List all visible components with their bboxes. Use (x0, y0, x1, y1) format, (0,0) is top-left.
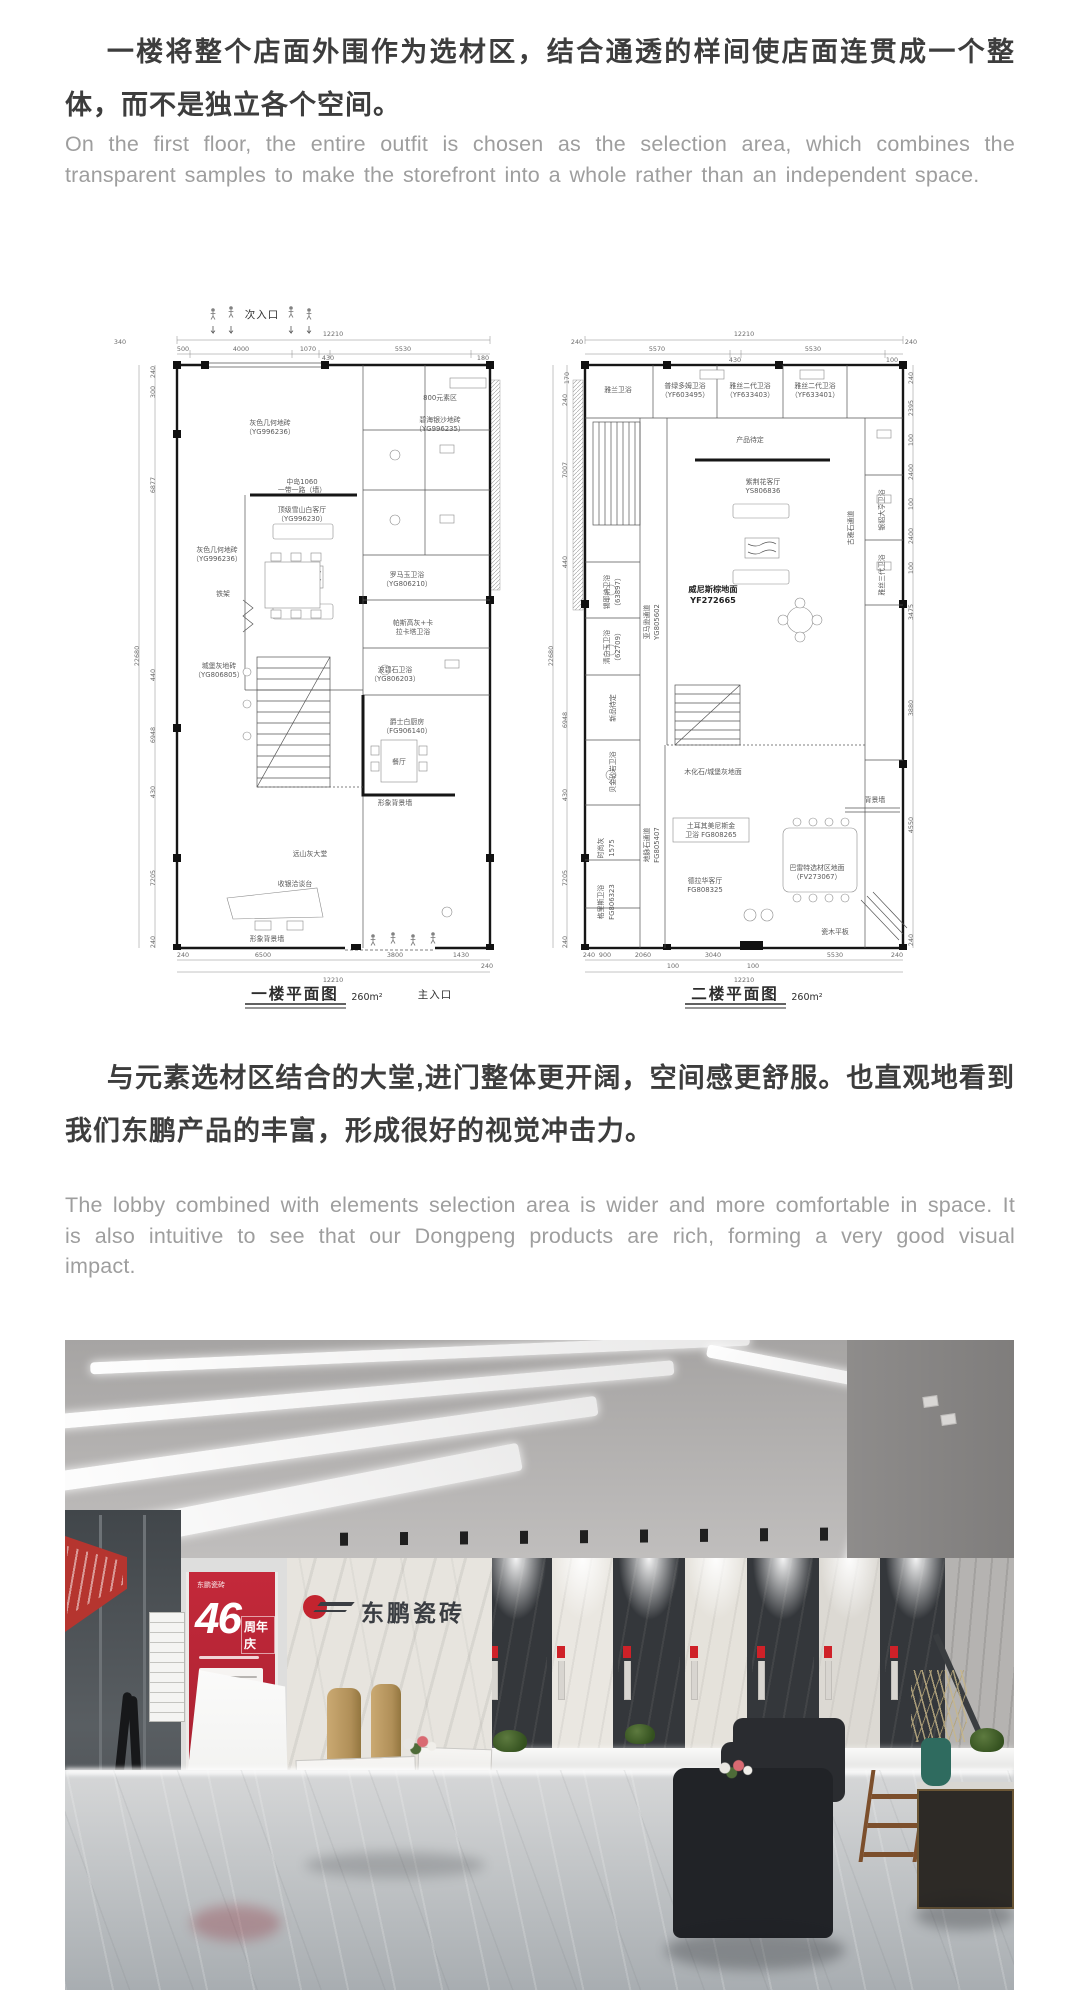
recessed-downlight (922, 1395, 938, 1408)
svg-text:雅丝二代卫浴: 雅丝二代卫浴 (729, 381, 770, 390)
svg-text:2400: 2400 (907, 464, 915, 480)
svg-text:3040: 3040 (705, 951, 721, 959)
svg-text:收银洽谈台: 收银洽谈台 (278, 879, 313, 888)
svg-text:雅丝二代卫浴: 雅丝二代卫浴 (794, 381, 835, 390)
wood-console (917, 1782, 1014, 1909)
svg-text:FG808325: FG808325 (687, 886, 723, 894)
logo-text: 东鹏瓷砖 (361, 1594, 465, 1628)
logo-red-circle-icon (303, 1595, 327, 1619)
svg-text:6877: 6877 (149, 477, 157, 493)
svg-text:7205: 7205 (149, 870, 157, 886)
potted-plant (625, 1724, 655, 1744)
middle-paragraph-en: The lobby combined with elements selecti… (65, 1190, 1015, 1282)
plan1-dimensions-left: 240 300 6877 440 6948 430 7205 240 22680 (133, 365, 157, 948)
svg-text:雅丝三代卫浴: 雅丝三代卫浴 (877, 554, 886, 595)
svg-text:锡耶纳卫浴: 锡耶纳卫浴 (602, 575, 611, 610)
svg-text:12210: 12210 (734, 330, 754, 338)
svg-text:YG805602: YG805602 (653, 604, 661, 641)
svg-text:（YF633401）: （YF633401） (791, 391, 839, 399)
svg-text:紫荆花客厅: 紫荆花客厅 (746, 477, 781, 486)
potted-plant (970, 1728, 1004, 1752)
svg-text:一带一路（墙）: 一带一路（墙） (278, 485, 326, 494)
svg-text:260m²: 260m² (351, 992, 382, 1003)
dried-branches (911, 1670, 967, 1742)
svg-text:2060: 2060 (635, 951, 651, 959)
price-tag (824, 1646, 832, 1658)
svg-text:340: 340 (114, 338, 126, 346)
svg-text:240: 240 (891, 951, 903, 959)
svg-text:22680: 22680 (133, 646, 141, 666)
svg-text:爵士白厨房: 爵士白厨房 (390, 717, 425, 726)
main-entrance-people (371, 907, 452, 946)
svg-text:城堡灰地砖: 城堡灰地砖 (202, 661, 237, 670)
svg-text:240: 240 (561, 936, 569, 948)
banner-reflection (191, 1905, 281, 1941)
floor-plan-second-floor: 12210 240 5570 430 5530 100 240 170 240 … (545, 300, 925, 1010)
svg-text:7205: 7205 (561, 870, 569, 886)
recessed-downlight (940, 1413, 956, 1426)
svg-text:240: 240 (583, 951, 595, 959)
svg-text:FG806323: FG806323 (608, 884, 616, 920)
svg-text:亚马逊通道: 亚马逊通道 (642, 605, 651, 640)
svg-text:240: 240 (149, 936, 157, 948)
svg-text:300: 300 (149, 386, 157, 398)
svg-text:瓷木平板: 瓷木平板 (821, 927, 849, 936)
entry-label-bottom: 主入口 (418, 989, 453, 1001)
svg-text:YF272665: YF272665 (689, 595, 736, 605)
svg-text:顶级雪山白客厅: 顶级雪山白客厅 (278, 505, 326, 514)
svg-text:4000: 4000 (233, 345, 249, 353)
dongpeng-logo: 东鹏瓷砖 (303, 1592, 493, 1626)
svg-text:6500: 6500 (255, 951, 271, 959)
price-tag (757, 1646, 765, 1658)
svg-text:100: 100 (907, 562, 915, 574)
potted-plant (493, 1730, 527, 1752)
console-reflection (915, 1900, 1014, 1930)
svg-text:430: 430 (561, 789, 569, 801)
svg-text:（YF603495）: （YF603495） (661, 391, 709, 399)
svg-text:900: 900 (599, 951, 611, 959)
svg-text:格里斯卫浴: 格里斯卫浴 (596, 885, 605, 920)
tile-display-panel (485, 1558, 547, 1754)
svg-text:12210: 12210 (323, 976, 343, 984)
showroom-photo: 东鹏瓷砖 东鹏瓷砖 46 周年庆 01 02 04 (65, 1340, 1014, 1990)
floor-plan-first-floor: 次入口 12210 340 500 4000 1070 430 5530 180… (95, 300, 505, 1010)
svg-text:土耳其美尼斯金: 土耳其美尼斯金 (687, 821, 735, 830)
plan2-dimensions-bottom: 240 900 2060 100 3040 100 5530 240 12210 (583, 951, 903, 984)
svg-text:YS806836: YS806836 (745, 487, 781, 495)
svg-text:时尚灰: 时尚灰 (596, 838, 605, 859)
banner-slogan-line (199, 1656, 259, 1659)
svg-text:5530: 5530 (805, 345, 821, 353)
banner-title: 周年庆 (241, 1616, 275, 1654)
plan1-caption: 一楼平面图 260m² 主入口 (245, 984, 452, 1008)
svg-text:FG805407: FG805407 (653, 827, 661, 863)
svg-text:（FG906140）: （FG906140） (382, 727, 431, 735)
svg-text:240: 240 (571, 338, 583, 346)
intro-paragraph-en: On the first floor, the entire outfit is… (65, 129, 1015, 190)
svg-text:（63897）: （63897） (614, 574, 622, 610)
svg-text:2395: 2395 (907, 400, 915, 416)
svg-text:（YG806203）: （YG806203） (370, 675, 420, 683)
tile-label-strip (825, 1661, 832, 1700)
black-sofa (673, 1768, 833, 1938)
entry-label-top: 次入口 (245, 308, 280, 321)
banner-brand-text: 东鹏瓷砖 (197, 1580, 225, 1590)
svg-text:贝金砂岩卫浴: 贝金砂岩卫浴 (608, 751, 617, 792)
svg-text:新品待定: 新品待定 (608, 694, 617, 722)
svg-text:2400: 2400 (907, 528, 915, 544)
price-tag (557, 1646, 565, 1658)
svg-text:12210: 12210 (323, 330, 343, 338)
svg-text:22680: 22680 (547, 646, 555, 666)
svg-text:800元素区: 800元素区 (423, 393, 457, 402)
svg-text:240: 240 (177, 951, 189, 959)
svg-text:（YG806210）: （YG806210） (382, 580, 432, 588)
svg-text:餐厅: 餐厅 (392, 757, 406, 766)
tile-label-strip (491, 1661, 498, 1700)
green-vase (921, 1738, 951, 1786)
svg-text:灰色几何地砖: 灰色几何地砖 (249, 418, 290, 427)
svg-text:240: 240 (907, 372, 915, 384)
svg-text:巴雷特选材区地面: 巴雷特选材区地面 (789, 863, 844, 872)
svg-text:6948: 6948 (149, 727, 157, 743)
tile-label-strip (891, 1661, 898, 1700)
svg-text:260m²: 260m² (791, 992, 822, 1003)
svg-text:（YG806805）: （YG806805） (194, 671, 244, 679)
tile-label-strip (558, 1661, 565, 1700)
svg-text:木化石/城堡灰地面: 木化石/城堡灰地面 (684, 767, 742, 776)
svg-text:180: 180 (477, 354, 489, 362)
svg-text:3800: 3800 (387, 951, 403, 959)
plan2-dimensions-left: 240 7007 440 6948 430 7205 240 22680 (547, 365, 569, 948)
svg-text:形象背景墙: 形象背景墙 (250, 934, 285, 943)
svg-text:240: 240 (907, 934, 915, 946)
svg-text:3880: 3880 (907, 700, 915, 716)
banner-number: 46 (195, 1594, 240, 1644)
flower-bouquet (395, 1732, 441, 1756)
tile-display-panel (552, 1558, 614, 1754)
svg-text:中岛1060: 中岛1060 (286, 477, 317, 486)
svg-text:440: 440 (561, 556, 569, 568)
svg-text:240: 240 (561, 394, 569, 406)
svg-text:4550: 4550 (907, 817, 915, 833)
svg-text:碧海银沙地砖: 碧海银沙地砖 (419, 415, 460, 424)
svg-text:二楼平面图: 二楼平面图 (691, 984, 779, 1003)
plan1-dimensions-bottom: 240 6500 3800 1430 240 12210 (177, 951, 493, 984)
svg-text:240: 240 (149, 366, 157, 378)
svg-text:（FV273067）: （FV273067） (793, 873, 842, 881)
svg-text:银貂大亨卫浴: 银貂大亨卫浴 (877, 489, 886, 530)
svg-text:德拉华客厅: 德拉华客厅 (688, 876, 723, 885)
svg-text:（YG996235）: （YG996235） (415, 425, 465, 433)
svg-text:100: 100 (886, 356, 898, 364)
price-tag (623, 1646, 631, 1658)
svg-text:1070: 1070 (300, 345, 316, 353)
sofa-reflection (665, 1930, 845, 1970)
svg-text:100: 100 (747, 962, 759, 970)
svg-text:灰色几何地砖: 灰色几何地砖 (196, 545, 237, 554)
svg-text:7007: 7007 (561, 462, 569, 478)
svg-text:产品待定: 产品待定 (736, 435, 764, 444)
svg-text:100: 100 (907, 498, 915, 510)
svg-text:430: 430 (729, 356, 741, 364)
svg-text:100: 100 (907, 434, 915, 446)
logo-wing-icon (317, 1602, 354, 1606)
svg-text:（YG996236）: （YG996236） (245, 428, 295, 436)
svg-text:430: 430 (322, 354, 334, 362)
svg-text:1430: 1430 (453, 951, 469, 959)
svg-text:（YG996236）: （YG996236） (192, 555, 242, 563)
plan1-dimensions-top: 12210 340 500 4000 1070 430 5530 180 (114, 330, 490, 362)
desk-reflection (305, 1852, 485, 1878)
svg-text:帕斯高灰+卡: 帕斯高灰+卡 (393, 618, 433, 627)
svg-text:5530: 5530 (395, 345, 411, 353)
svg-text:波碧石卫浴: 波碧石卫浴 (378, 665, 413, 674)
svg-text:240: 240 (905, 338, 917, 346)
tile-label-strip (624, 1661, 631, 1700)
tile-display-panel (618, 1558, 680, 1754)
plan2-dimensions-right: 240 2395 100 2400 100 2400 100 3475 3880… (907, 365, 915, 948)
whiteboard (149, 1612, 185, 1722)
svg-text:地脉石通道: 地脉石通道 (642, 828, 651, 863)
middle-paragraph-cn: 与元素选材区结合的大堂,进门整体更开阔，空间感更舒服。也直观地看到我们东鹏产品的… (65, 1052, 1015, 1157)
svg-text:500: 500 (177, 345, 189, 353)
svg-text:5570: 5570 (649, 345, 665, 353)
svg-text:清白玉卫浴: 清白玉卫浴 (602, 630, 611, 665)
svg-text:6948: 6948 (561, 712, 569, 728)
svg-text:（YG996230）: （YG996230） (277, 515, 327, 523)
svg-text:430: 430 (149, 786, 157, 798)
svg-text:铁架: 铁架 (216, 589, 230, 598)
plan1-furniture (227, 378, 486, 930)
svg-text:远山灰大堂: 远山灰大堂 (293, 849, 328, 858)
tile-label-strip (758, 1661, 765, 1700)
svg-text:100: 100 (667, 962, 679, 970)
svg-text:5530: 5530 (827, 951, 843, 959)
svg-text:1575: 1575 (608, 839, 616, 857)
svg-text:240: 240 (481, 962, 493, 970)
svg-text:形象背景墙: 形象背景墙 (378, 798, 413, 807)
plan1-stairs (243, 657, 330, 787)
svg-text:一楼平面图: 一楼平面图 (251, 984, 339, 1003)
svg-text:3475: 3475 (907, 604, 915, 620)
intro-paragraph-cn: 一楼将整个店面外围作为选材区，结合通透的样间使店面连贯成一个整体，而不是独立各个… (65, 26, 1015, 131)
plan2-caption: 二楼平面图 260m² (685, 984, 823, 1008)
svg-text:古雅石通道: 古雅石通道 (846, 511, 855, 546)
svg-text:背景墙: 背景墙 (865, 795, 886, 804)
ceiling-dark-panel (847, 1340, 1014, 1558)
ceiling (65, 1340, 1014, 1558)
price-tag (890, 1646, 898, 1658)
flower-bouquet (711, 1756, 757, 1780)
svg-text:罗马玉卫浴: 罗马玉卫浴 (390, 570, 425, 579)
svg-text:12210: 12210 (734, 976, 754, 984)
svg-text:卫浴 FG808265: 卫浴 FG808265 (685, 830, 737, 839)
svg-text:雅兰卫浴: 雅兰卫浴 (604, 385, 632, 394)
svg-text:拉卡塔卫浴: 拉卡塔卫浴 (396, 627, 431, 636)
svg-text:440: 440 (149, 669, 157, 681)
article-page: 一楼将整个店面外围作为选材区，结合通透的样间使店面连贯成一个整体，而不是独立各个… (0, 0, 1079, 1991)
tile-label-strip (691, 1661, 698, 1700)
svg-text:威尼斯棕地面: 威尼斯棕地面 (688, 584, 737, 594)
price-tag (690, 1646, 698, 1658)
plan2-dimensions-top: 12210 240 5570 430 5530 100 240 170 (563, 330, 917, 384)
tile-display-wall (483, 1558, 949, 1754)
svg-text:普绿多姆卫浴: 普绿多姆卫浴 (664, 381, 705, 390)
svg-text:（YF633403）: （YF633403） (726, 391, 774, 399)
svg-text:（62709）: （62709） (614, 629, 622, 665)
